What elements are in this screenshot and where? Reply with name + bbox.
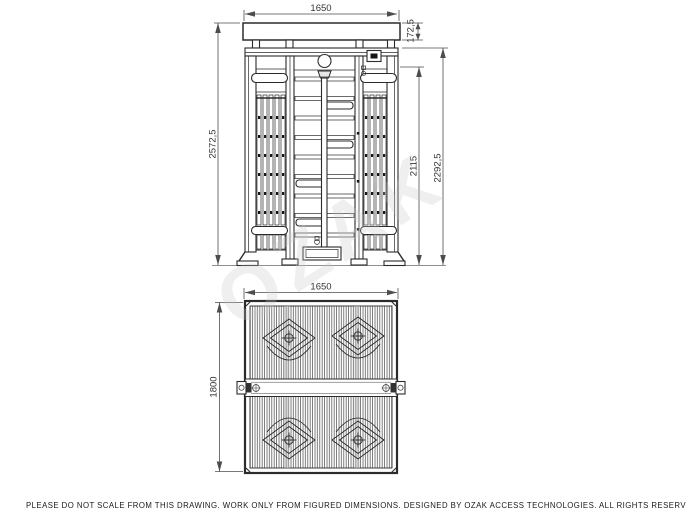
dimension-total-height: 2572,5 <box>208 23 241 265</box>
technical-drawing: 1650 2572,5 172,5 2115 2292,5 1650 1800 … <box>0 0 686 515</box>
right-panel-top-pipe <box>361 74 397 83</box>
beam-left-mount <box>237 382 246 395</box>
canopy <box>243 23 400 40</box>
left-panel-clamps <box>258 116 284 214</box>
plan-header-beam <box>237 379 405 397</box>
drawing-page: 1650 2572,5 172,5 2115 2292,5 1650 1800 … <box>0 0 686 515</box>
left-panel-top-pipe <box>252 74 288 83</box>
dim-text-canopy-height: 172,5 <box>406 19 417 43</box>
canopy-post-stubs <box>253 40 395 48</box>
dim-text-total-height: 2572,5 <box>208 129 219 158</box>
dimension-canopy-height: 172,5 <box>402 19 423 43</box>
dim-text-front-width: 1650 <box>310 3 331 14</box>
dim-text-plan-depth: 1800 <box>209 376 220 397</box>
beam-right-mount <box>396 382 405 395</box>
dimension-front-width: 1650 <box>244 3 399 21</box>
footer-note: PLEASE DO NOT SCALE FROM THIS DRAWING. W… <box>26 501 676 510</box>
indicator-light <box>318 55 331 68</box>
